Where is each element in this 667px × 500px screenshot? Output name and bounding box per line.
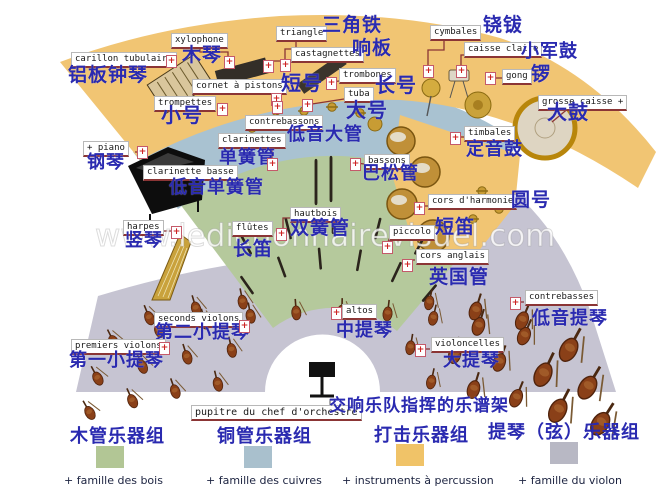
label-zh-harpes: 竖琴: [125, 232, 163, 251]
label-zh-tuba: 大号: [346, 100, 388, 121]
label-zh-piano: 钢琴: [87, 154, 125, 173]
label-zh-xylophone: 木琴: [182, 46, 222, 66]
plus-connector-tuba: [302, 99, 313, 112]
label-zh-triangle: 三角铁: [322, 16, 382, 36]
label-fr-gong: gong: [502, 69, 532, 85]
label-zh-premiers-violons: 第一小提琴: [69, 352, 164, 371]
plus-connector-castagnettes: [263, 60, 274, 73]
label-zh-hautbois: 双簧管: [290, 219, 350, 239]
plus-connector-cymbales: [423, 65, 434, 78]
label-zh-flutes: 长笛: [233, 240, 273, 260]
legend-swatch-percussion: [396, 444, 424, 466]
label-zh-cornet-a-pistons: 短号: [281, 73, 323, 94]
plus-connector-harpes: [171, 226, 182, 239]
conductor-stand-icon: [309, 362, 335, 396]
label-zh-cors-anglais: 英国管: [429, 268, 489, 288]
label-zh-seconds-violons: 第二小提琴: [155, 324, 250, 343]
plus-connector-trompettes: [217, 103, 228, 116]
plus-connector-seconds-violons: [239, 320, 250, 333]
label-fr-cymbales: cymbales: [430, 25, 481, 41]
plus-connector-piccolo: [382, 241, 393, 254]
gong-icon: [465, 92, 491, 118]
label-zh-cymbales: 铙钹: [483, 16, 523, 36]
legend-swatch-brass: [244, 446, 272, 468]
label-fr-cors-anglais: cors anglais: [416, 249, 489, 265]
label-fr-triangle: triangle: [276, 26, 327, 42]
legend-swatch-strings: [550, 442, 578, 464]
label-zh-pupitre: 交响乐队指挥的乐谱架: [329, 398, 509, 416]
label-zh-altos: 中提琴: [336, 322, 393, 341]
plus-connector-caisse-claire: [456, 65, 467, 78]
plus-connector-bassons: [350, 158, 361, 171]
plus-connector-triangle: [280, 59, 291, 72]
legend-swatch-woodwind: [96, 446, 124, 468]
label-fr-altos: altos: [342, 304, 377, 320]
label-zh-castagnettes: 响板: [352, 39, 392, 59]
plus-connector-cors-harmonie: [414, 202, 425, 215]
label-zh-trombones: 长号: [375, 75, 417, 96]
plus-connector-cors-anglais: [402, 259, 413, 272]
plus-connector-carillon: [166, 55, 177, 68]
legend-caption-percussion: + instruments à percussion: [342, 474, 494, 487]
label-zh-clarinette-basse: 低音单簧管: [169, 179, 264, 198]
label-zh-cors-harmonie: 圆号: [511, 191, 551, 211]
plus-connector-timbales: [450, 132, 461, 145]
plus-connector-hautbois: [276, 228, 287, 241]
label-zh-contrebasses: 低音提琴: [532, 310, 608, 329]
label-fr-contrebasses: contrebasses: [525, 290, 598, 306]
plus-connector-altos: [331, 307, 342, 320]
label-zh-violoncelles: 大提琴: [443, 352, 500, 371]
label-fr-flutes: flûtes: [232, 221, 273, 237]
label-zh-trompettes: 小号: [161, 105, 203, 126]
plus-connector-contrebasses: [510, 297, 521, 310]
label-zh-bassons: 巴松管: [362, 165, 419, 184]
label-zh-piccolo: 短笛: [435, 218, 475, 238]
plus-connector-clarinettes: [267, 158, 278, 171]
legend-caption-woodwind: + famille des bois: [64, 474, 163, 487]
orchestra-seating-diagram: www.ledictionnairevisuel.com carillon tu…: [0, 0, 667, 500]
plus-connector-contrebassons: [272, 101, 283, 114]
plus-connector-xylophone: [224, 56, 235, 69]
label-zh-caisse-claire: 小军鼓: [521, 43, 578, 62]
plus-connector-violoncelles: [415, 344, 426, 357]
label-zh-timbales: 定音鼓: [466, 141, 523, 160]
label-zh-carillon-tubulaire: 铝板钟琴: [68, 66, 148, 86]
label-zh-contrebassons: 低音大管: [287, 126, 363, 145]
plus-connector-piano: [137, 146, 148, 159]
label-zh-gong: 锣: [531, 65, 551, 85]
label-zh-grosse-caisse: 大鼓: [547, 102, 589, 123]
plus-connector-trombones: [326, 77, 337, 90]
label-fr-piccolo: piccolo: [389, 225, 435, 241]
legend-title-strings: 提琴（弦）乐器组: [488, 418, 640, 444]
legend-title-brass: 铜管乐器组: [217, 422, 312, 448]
legend-caption-strings: + famille du violon: [518, 474, 622, 487]
label-fr-cors-harmonie: cors d'harmonie: [428, 194, 517, 210]
plus-connector-premiers-violons: [159, 342, 170, 355]
legend-title-woodwind: 木管乐器组: [70, 422, 165, 448]
plus-connector-gong: [485, 72, 496, 85]
legend-caption-brass: + famille des cuivres: [206, 474, 322, 487]
